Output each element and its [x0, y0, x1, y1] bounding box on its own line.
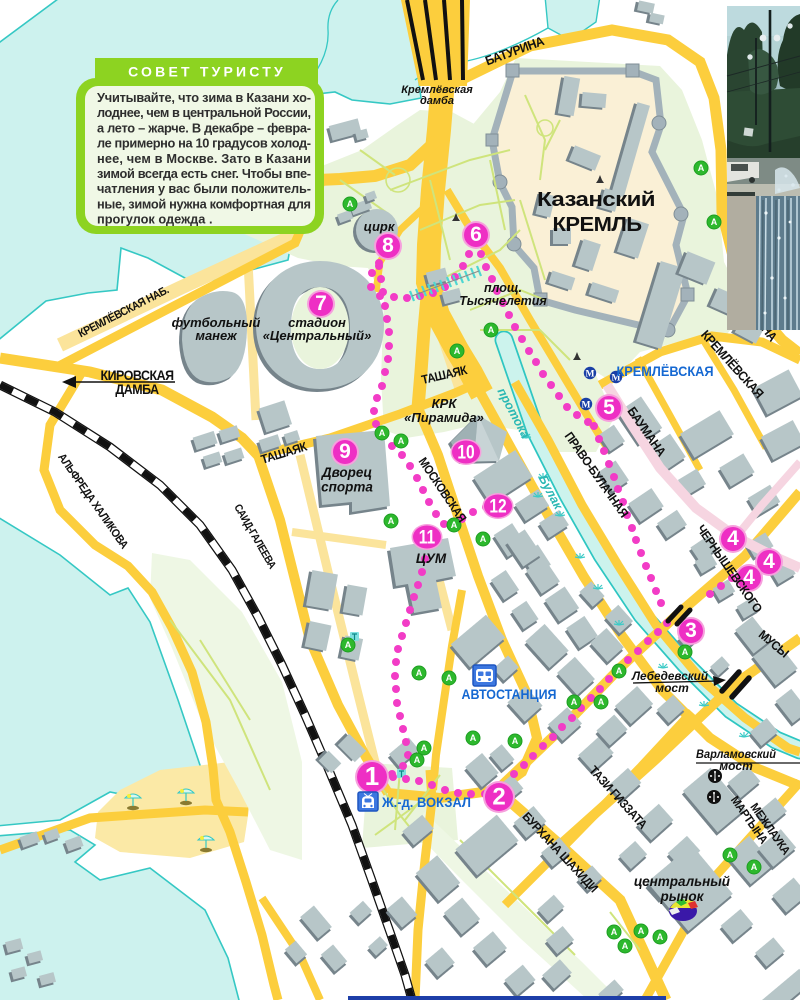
svg-text:A: A	[751, 862, 758, 872]
svg-text:11: 11	[419, 526, 436, 548]
svg-text:площ.: площ.	[484, 281, 522, 295]
svg-text:АВТОСТАНЦИЯ: АВТОСТАНЦИЯ	[462, 686, 557, 702]
svg-text:A: A	[711, 217, 718, 227]
svg-text:рынок: рынок	[659, 889, 704, 904]
svg-text:дамба: дамба	[420, 95, 454, 107]
svg-text:2: 2	[492, 783, 505, 810]
svg-text:A: A	[598, 697, 605, 707]
svg-text:М: М	[582, 400, 591, 410]
svg-text:4: 4	[763, 550, 775, 573]
svg-text:3: 3	[685, 619, 697, 642]
svg-text:центральный: центральный	[634, 874, 731, 889]
svg-text:Казанский: Казанский	[537, 189, 655, 211]
svg-text:A: A	[616, 666, 623, 676]
svg-text:мост: мост	[719, 759, 753, 773]
svg-text:зимой всегда есть снег. Чтобы: зимой всегда есть снег. Чтобы впе-	[97, 166, 311, 181]
svg-text:М: М	[586, 369, 595, 379]
svg-text:Дворец: Дворец	[321, 465, 373, 480]
svg-text:A: A	[388, 516, 395, 526]
svg-text:A: A	[347, 199, 354, 209]
svg-text:нее, чем в Москве. Зато в Каза: нее, чем в Москве. Зато в Казани	[97, 151, 311, 166]
svg-text:8: 8	[382, 234, 394, 257]
svg-text:Тысячелетия: Тысячелетия	[459, 294, 547, 308]
svg-text:Учитывайте, что зима в Казани: Учитывайте, что зима в Казани хо-	[97, 90, 311, 105]
svg-text:1: 1	[365, 761, 379, 791]
svg-text:спорта: спорта	[321, 480, 373, 495]
svg-text:манеж: манеж	[195, 328, 238, 343]
svg-text:мост: мост	[655, 681, 689, 695]
svg-text:ДАМБА: ДАМБА	[115, 382, 159, 398]
svg-text:A: A	[488, 325, 495, 335]
svg-text:A: A	[446, 673, 453, 683]
svg-text:A: A	[682, 647, 689, 657]
svg-text:9: 9	[339, 440, 351, 463]
svg-text:A: A	[398, 436, 405, 446]
svg-text:A: A	[727, 850, 734, 860]
svg-text:12: 12	[489, 495, 506, 517]
svg-text:A: A	[571, 697, 578, 707]
svg-text:а лето – жарче. В декабре – фе: а лето – жарче. В декабре – февра-	[97, 120, 311, 135]
svg-text:КРК: КРК	[432, 396, 458, 411]
svg-text:ЦУМ: ЦУМ	[416, 551, 447, 566]
svg-text:A: A	[414, 755, 421, 765]
svg-text:10: 10	[457, 441, 474, 463]
svg-text:A: A	[622, 941, 629, 951]
svg-text:7: 7	[315, 292, 327, 315]
svg-text:«Пирамида»: «Пирамида»	[404, 410, 484, 425]
svg-text:A: A	[638, 926, 645, 936]
svg-text:Ж.-д. ВОКЗАЛ: Ж.-д. ВОКЗАЛ	[381, 794, 471, 810]
svg-text:A: A	[480, 534, 487, 544]
svg-text:прогулок одежда .: прогулок одежда .	[97, 212, 213, 227]
svg-text:6: 6	[470, 223, 482, 246]
svg-text:A: A	[416, 668, 423, 678]
svg-text:КРЕМЛЁВСКАЯ: КРЕМЛЁВСКАЯ	[617, 364, 714, 379]
svg-text:5: 5	[603, 396, 615, 419]
svg-text:«Центральный»: «Центральный»	[263, 328, 372, 343]
svg-text:4: 4	[727, 527, 739, 550]
svg-text:чатления у вас были положитель: чатления у вас были положитель-	[97, 181, 311, 196]
svg-text:A: A	[698, 163, 705, 173]
svg-text:СОВЕТ ТУРИСТУ: СОВЕТ ТУРИСТУ	[128, 64, 286, 80]
svg-text:КРЕМЛЬ: КРЕМЛЬ	[553, 214, 642, 236]
svg-text:A: A	[421, 743, 428, 753]
svg-text:A: A	[379, 428, 386, 438]
svg-text:A: A	[611, 927, 618, 937]
svg-text:A: A	[512, 736, 519, 746]
svg-text:цирк: цирк	[364, 219, 396, 234]
svg-text:A: A	[345, 640, 352, 650]
svg-text:лоднее, чем в центральной Росс: лоднее, чем в центральной России,	[97, 105, 311, 120]
svg-text:A: A	[657, 932, 664, 942]
svg-text:ные, зимой нужна комфортная дл: ные, зимой нужна комфортная для	[97, 196, 311, 211]
svg-text:A: A	[454, 346, 461, 356]
svg-text:A: A	[470, 733, 477, 743]
svg-text:ле примерно на 10 градусов хол: ле примерно на 10 градусов холод-	[97, 136, 311, 151]
